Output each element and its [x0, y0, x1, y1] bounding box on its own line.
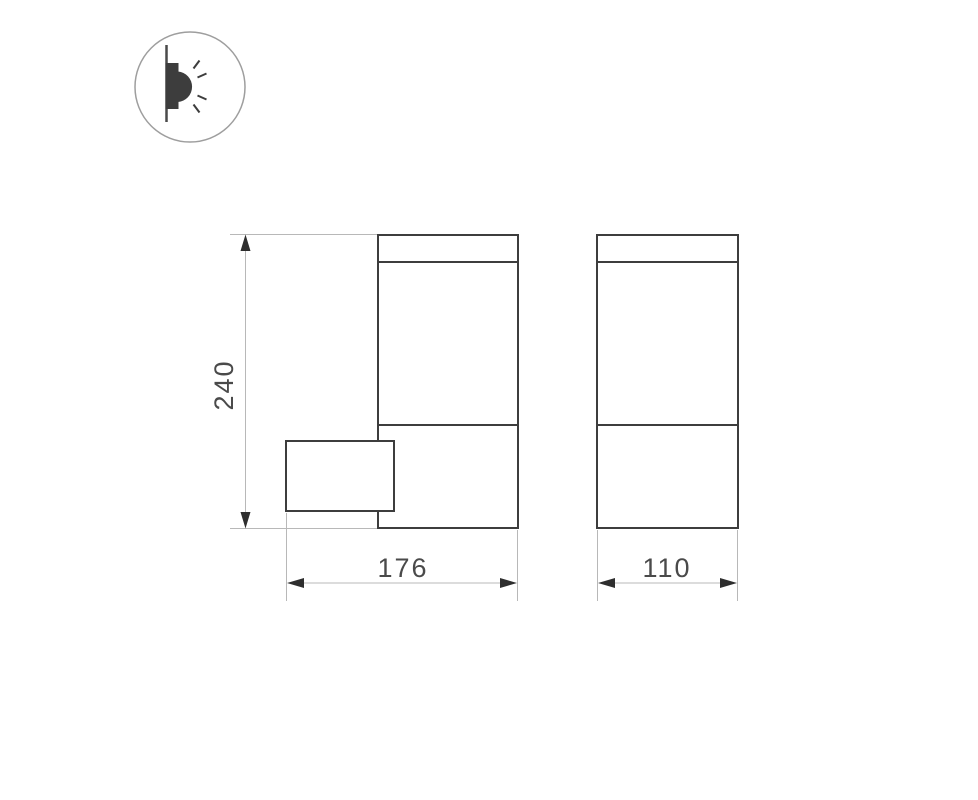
side-view	[286, 235, 518, 528]
front-view	[597, 235, 738, 528]
side-width-arrow-right	[500, 578, 517, 588]
height-arrow-up	[241, 235, 251, 252]
drawing-page: 240 176 110	[0, 0, 978, 800]
front-width-arrow-left	[598, 578, 615, 588]
height-dimension-label: 240	[209, 359, 239, 410]
icon-light-rays	[194, 61, 207, 113]
drawing-canvas: 240 176 110	[0, 0, 978, 800]
side-width-dimension-label: 176	[377, 553, 428, 583]
height-arrow-down	[241, 512, 251, 529]
wall-light-icon	[135, 32, 245, 142]
side-view-body-outline	[378, 235, 518, 528]
front-width-arrow-right	[720, 578, 737, 588]
icon-lamp-body	[166, 63, 179, 109]
front-width-dimension-label: 110	[642, 553, 691, 583]
side-width-arrow-left	[287, 578, 304, 588]
icon-lamp-shade	[178, 72, 192, 103]
front-view-body-outline	[597, 235, 738, 528]
side-view-mounting-box	[286, 441, 394, 511]
